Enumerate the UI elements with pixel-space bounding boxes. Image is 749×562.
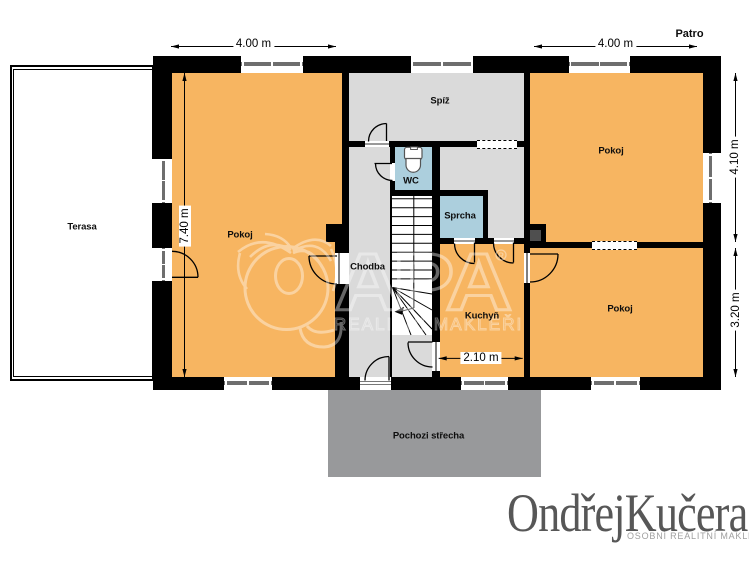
- svg-text:R: R: [498, 252, 504, 261]
